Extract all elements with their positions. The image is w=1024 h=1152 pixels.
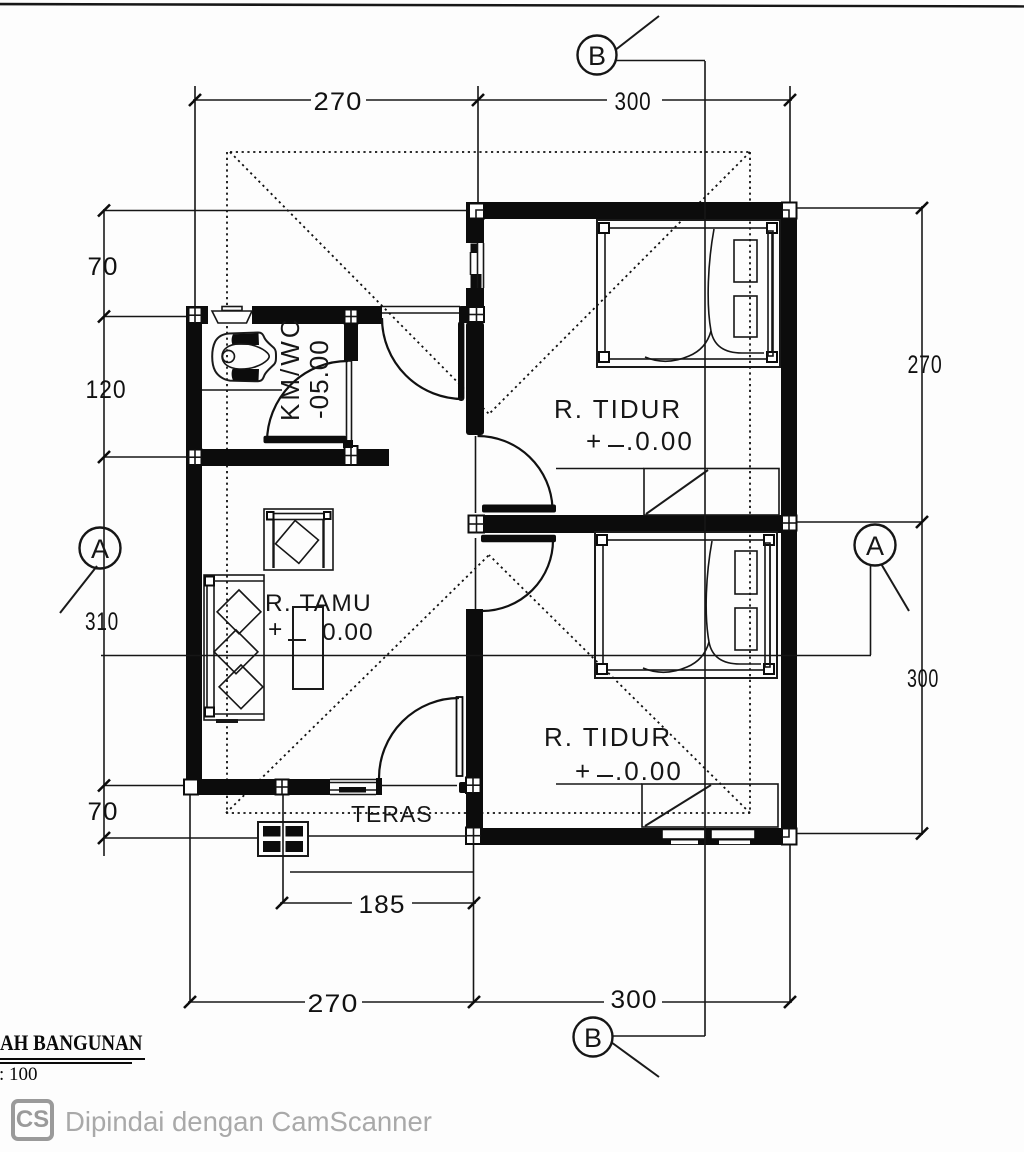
svg-text:270: 270 [308,990,359,1018]
svg-text:270: 270 [314,88,363,116]
svg-text:B: B [588,41,606,71]
svg-text:70: 70 [88,253,119,281]
svg-text:70: 70 [88,798,119,826]
svg-text:.0.00: .0.00 [615,756,683,786]
svg-text:300: 300 [615,88,652,116]
svg-text:120: 120 [86,376,127,404]
svg-text:B: B [584,1023,602,1053]
svg-text:270: 270 [908,351,943,379]
svg-text:A: A [866,531,884,561]
svg-text:300: 300 [907,665,939,693]
svg-text:KM/WC: KM/WC [275,316,305,421]
svg-text:R. TIDUR: R. TIDUR [554,394,682,424]
svg-text:+: + [586,426,603,456]
svg-text:0.00: 0.00 [322,619,374,646]
svg-text:R. TAMU: R. TAMU [265,590,372,617]
svg-text:-05.00: -05.00 [304,339,334,419]
svg-text:+: + [268,616,282,643]
svg-text:310: 310 [85,608,119,636]
svg-text:R. TIDUR: R. TIDUR [544,722,672,752]
svg-text:+: + [575,756,592,786]
svg-text:A: A [91,534,109,564]
svg-text:TERAS: TERAS [351,801,433,827]
svg-text:185: 185 [359,891,406,919]
svg-text:.0.00: .0.00 [626,426,694,456]
svg-text:300: 300 [611,986,658,1014]
